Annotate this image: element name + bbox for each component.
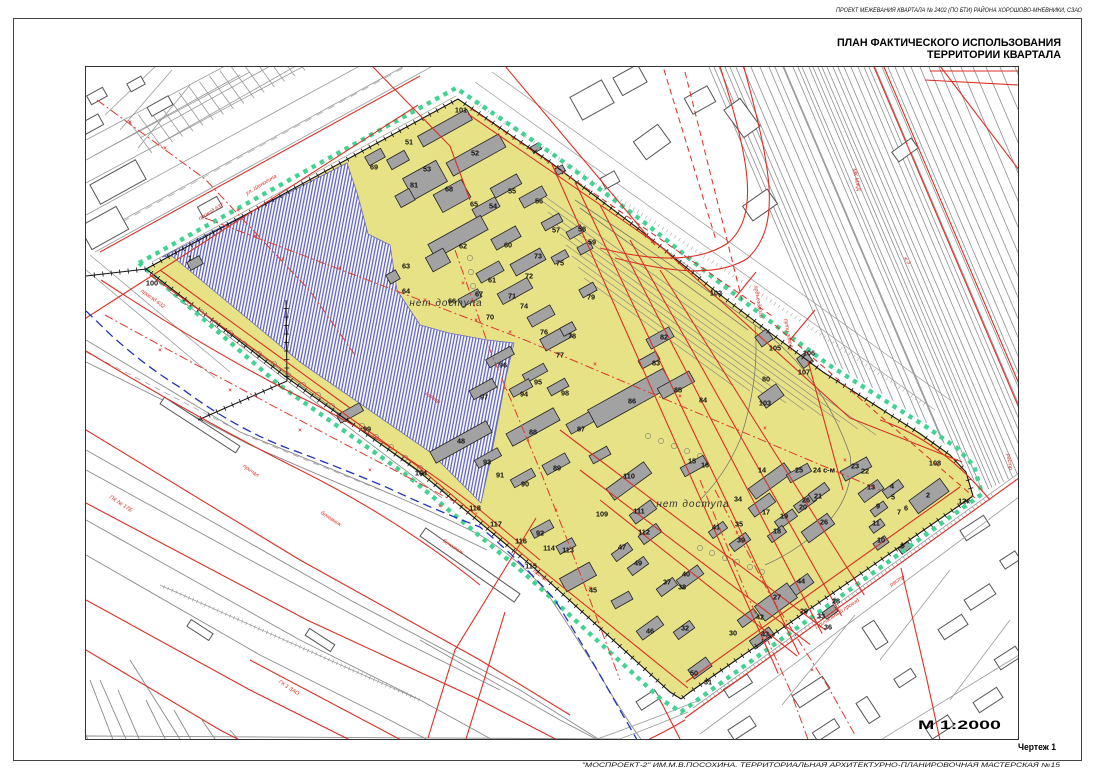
svg-text:ПЛАН ФАКТИЧЕСКОГО ИСПОЛЬЗОВАНИ: ПЛАН ФАКТИЧЕСКОГО ИСПОЛЬЗОВАНИЯ — [837, 37, 1061, 49]
svg-text:104: 104 — [415, 469, 428, 478]
svg-text:72: 72 — [525, 272, 533, 281]
svg-text:25: 25 — [795, 466, 803, 475]
svg-text:55: 55 — [508, 187, 516, 196]
svg-text:МК МЖД: МК МЖД — [851, 168, 862, 192]
svg-text:87: 87 — [577, 425, 585, 434]
svg-text:64: 64 — [402, 287, 411, 296]
svg-text:6: 6 — [904, 504, 908, 513]
svg-text:39: 39 — [737, 536, 745, 545]
svg-text:113: 113 — [562, 546, 574, 555]
svg-text:3: 3 — [900, 542, 904, 551]
svg-text:19: 19 — [780, 512, 788, 521]
svg-text:118: 118 — [469, 504, 481, 513]
svg-text:×: × — [253, 234, 257, 240]
svg-text:14: 14 — [758, 466, 767, 475]
svg-text:82: 82 — [660, 333, 668, 342]
svg-text:причал: причал — [241, 464, 259, 479]
svg-text:ТЕРРИТОРИИ КВАРТАЛА: ТЕРРИТОРИИ КВАРТАЛА — [927, 49, 1061, 61]
svg-text:44: 44 — [797, 577, 806, 586]
svg-text:18: 18 — [773, 527, 781, 536]
svg-text:73: 73 — [534, 252, 542, 261]
svg-text:53: 53 — [423, 165, 431, 174]
svg-text:102: 102 — [710, 289, 722, 298]
svg-text:23: 23 — [851, 462, 859, 471]
svg-text:78: 78 — [568, 332, 576, 341]
svg-text:71: 71 — [508, 292, 516, 301]
svg-text:100: 100 — [146, 279, 158, 288]
svg-text:41: 41 — [712, 523, 720, 532]
svg-text:37: 37 — [663, 578, 671, 587]
svg-text:90: 90 — [521, 480, 529, 489]
svg-text:×: × — [368, 468, 372, 474]
svg-text:×: × — [461, 281, 465, 287]
svg-text:66: 66 — [448, 297, 456, 306]
svg-text:49: 49 — [634, 559, 642, 568]
svg-text:74: 74 — [520, 302, 529, 311]
svg-text:54: 54 — [489, 202, 498, 211]
svg-text:117: 117 — [490, 520, 502, 529]
svg-text:7: 7 — [897, 508, 901, 517]
svg-text:52: 52 — [471, 149, 479, 158]
svg-text:38: 38 — [678, 583, 686, 592]
svg-text:101: 101 — [455, 106, 467, 115]
svg-text:110: 110 — [623, 472, 635, 481]
svg-text:ПК № 17Б: ПК № 17Б — [108, 495, 133, 514]
svg-text:99: 99 — [363, 425, 371, 434]
svg-text:×: × — [843, 458, 847, 464]
svg-text:80: 80 — [762, 375, 770, 384]
svg-text:69: 69 — [370, 163, 378, 172]
svg-text:33: 33 — [817, 612, 825, 621]
svg-text:9: 9 — [876, 502, 880, 511]
svg-text:83: 83 — [652, 359, 660, 368]
svg-text:40: 40 — [682, 570, 690, 579]
svg-text:106: 106 — [803, 349, 815, 358]
svg-text:×: × — [593, 362, 597, 368]
svg-text:"МОСПРОЕКТ-2" ИМ.М.В.ПОСОХИНА.: "МОСПРОЕКТ-2" ИМ.М.В.ПОСОХИНА. ТЕРРИТОРИ… — [582, 762, 1061, 769]
svg-text:17: 17 — [762, 508, 770, 517]
svg-text:36: 36 — [824, 623, 832, 632]
svg-text:растр: растр — [888, 574, 906, 589]
svg-text:75: 75 — [556, 259, 564, 268]
svg-text:46: 46 — [646, 627, 654, 636]
svg-text:60: 60 — [504, 241, 512, 250]
svg-text:24 с-м: 24 с-м — [813, 466, 835, 475]
svg-text:Чертеж 1: Чертеж 1 — [1018, 742, 1056, 752]
svg-text:58: 58 — [578, 225, 586, 234]
svg-text:2: 2 — [926, 491, 930, 500]
svg-text:27: 27 — [773, 593, 781, 602]
svg-text:97: 97 — [480, 393, 488, 402]
svg-text:89: 89 — [553, 464, 561, 473]
svg-text:×: × — [423, 298, 427, 304]
svg-text:×: × — [338, 266, 342, 272]
svg-text:ГК 1 ЗАО: ГК 1 ЗАО — [277, 679, 300, 697]
svg-text:62: 62 — [459, 242, 467, 251]
svg-text:34: 34 — [734, 495, 743, 504]
svg-text:114: 114 — [543, 544, 556, 553]
svg-text:×: × — [474, 318, 478, 324]
svg-text:70: 70 — [486, 313, 494, 322]
svg-text:16: 16 — [701, 461, 709, 470]
svg-text:бечевник: бечевник — [319, 510, 342, 528]
svg-text:76: 76 — [540, 328, 548, 337]
svg-text:86: 86 — [628, 397, 636, 406]
svg-text:×: × — [554, 508, 558, 514]
svg-text:32: 32 — [681, 624, 689, 633]
svg-text:56: 56 — [535, 197, 543, 206]
svg-text:15: 15 — [688, 457, 696, 466]
svg-text:59: 59 — [588, 238, 596, 247]
svg-text:12к: 12к — [958, 497, 970, 506]
svg-text:92: 92 — [536, 529, 544, 538]
svg-text:×: × — [236, 208, 240, 214]
svg-text:10: 10 — [877, 536, 885, 545]
svg-text:28: 28 — [832, 597, 840, 606]
svg-text:×: × — [773, 601, 777, 607]
svg-text:105: 105 — [769, 344, 781, 353]
svg-text:1: 1 — [188, 254, 192, 263]
svg-text:109: 109 — [596, 510, 608, 519]
svg-text:×: × — [503, 386, 507, 392]
svg-text:67: 67 — [475, 290, 483, 299]
svg-text:×: × — [678, 394, 682, 400]
svg-text:107: 107 — [798, 368, 810, 377]
svg-text:нет доступа: нет доступа — [656, 499, 729, 510]
svg-text:11: 11 — [872, 519, 880, 528]
svg-text:50: 50 — [690, 669, 698, 678]
svg-text:103: 103 — [759, 399, 771, 408]
svg-text:111: 111 — [633, 507, 644, 516]
svg-text:91: 91 — [496, 471, 504, 480]
svg-text:×: × — [163, 146, 167, 152]
svg-text:×: × — [281, 257, 285, 263]
svg-text:68: 68 — [445, 185, 453, 194]
svg-text:81: 81 — [410, 181, 418, 190]
svg-text:98: 98 — [561, 389, 569, 398]
svg-text:ул. Шеногина: ул. Шеногина — [244, 174, 278, 198]
svg-text:13: 13 — [867, 483, 875, 492]
svg-text:21: 21 — [814, 492, 822, 501]
svg-text:51: 51 — [405, 138, 413, 147]
svg-text:×: × — [508, 330, 512, 336]
svg-text:93: 93 — [483, 458, 491, 467]
svg-text:29: 29 — [800, 607, 808, 616]
svg-text:116: 116 — [515, 537, 527, 546]
svg-text:5: 5 — [891, 493, 895, 502]
svg-text:22: 22 — [861, 467, 869, 476]
svg-text:112: 112 — [638, 528, 650, 537]
svg-text:77: 77 — [556, 351, 564, 360]
svg-text:20: 20 — [799, 503, 807, 512]
svg-text:65: 65 — [470, 200, 478, 209]
svg-text:35: 35 — [735, 520, 743, 529]
svg-text:42: 42 — [756, 613, 764, 622]
svg-text:108: 108 — [929, 459, 941, 468]
svg-text:79: 79 — [587, 293, 595, 302]
svg-text:63: 63 — [402, 262, 410, 271]
svg-text:×: × — [298, 428, 302, 434]
svg-text:×: × — [128, 120, 132, 126]
svg-text:95: 95 — [534, 378, 542, 387]
svg-text:31: 31 — [704, 678, 712, 687]
svg-text:30: 30 — [729, 629, 737, 638]
svg-text:26: 26 — [820, 518, 828, 527]
svg-text:88: 88 — [529, 428, 537, 437]
svg-text:85: 85 — [674, 386, 682, 395]
svg-text:115: 115 — [525, 562, 537, 571]
svg-text:47: 47 — [618, 543, 626, 552]
svg-text:нет доступа: нет доступа — [409, 298, 482, 309]
svg-text:М 1:2000: М 1:2000 — [918, 718, 1002, 732]
svg-text:×: × — [526, 438, 530, 444]
svg-text:96: 96 — [499, 361, 507, 370]
svg-text:×: × — [438, 504, 442, 510]
svg-text:×: × — [228, 388, 232, 394]
svg-text:ПРОЕКТ МЕЖЕВАНИЯ КВАРТАЛА № 24: ПРОЕКТ МЕЖЕВАНИЯ КВАРТАЛА № 2402 (ПО БТИ… — [836, 5, 1082, 14]
svg-text:61: 61 — [488, 276, 496, 285]
svg-text:×: × — [158, 348, 162, 354]
svg-text:84: 84 — [699, 396, 708, 405]
svg-text:57: 57 — [552, 226, 560, 235]
svg-text:43: 43 — [761, 630, 769, 639]
svg-text:подъездного: подъездного — [752, 285, 764, 318]
svg-text:94: 94 — [520, 390, 529, 399]
svg-text:48: 48 — [457, 437, 465, 446]
svg-text:45: 45 — [589, 586, 597, 595]
svg-text:×: × — [763, 426, 767, 432]
svg-text:×: × — [810, 668, 814, 674]
